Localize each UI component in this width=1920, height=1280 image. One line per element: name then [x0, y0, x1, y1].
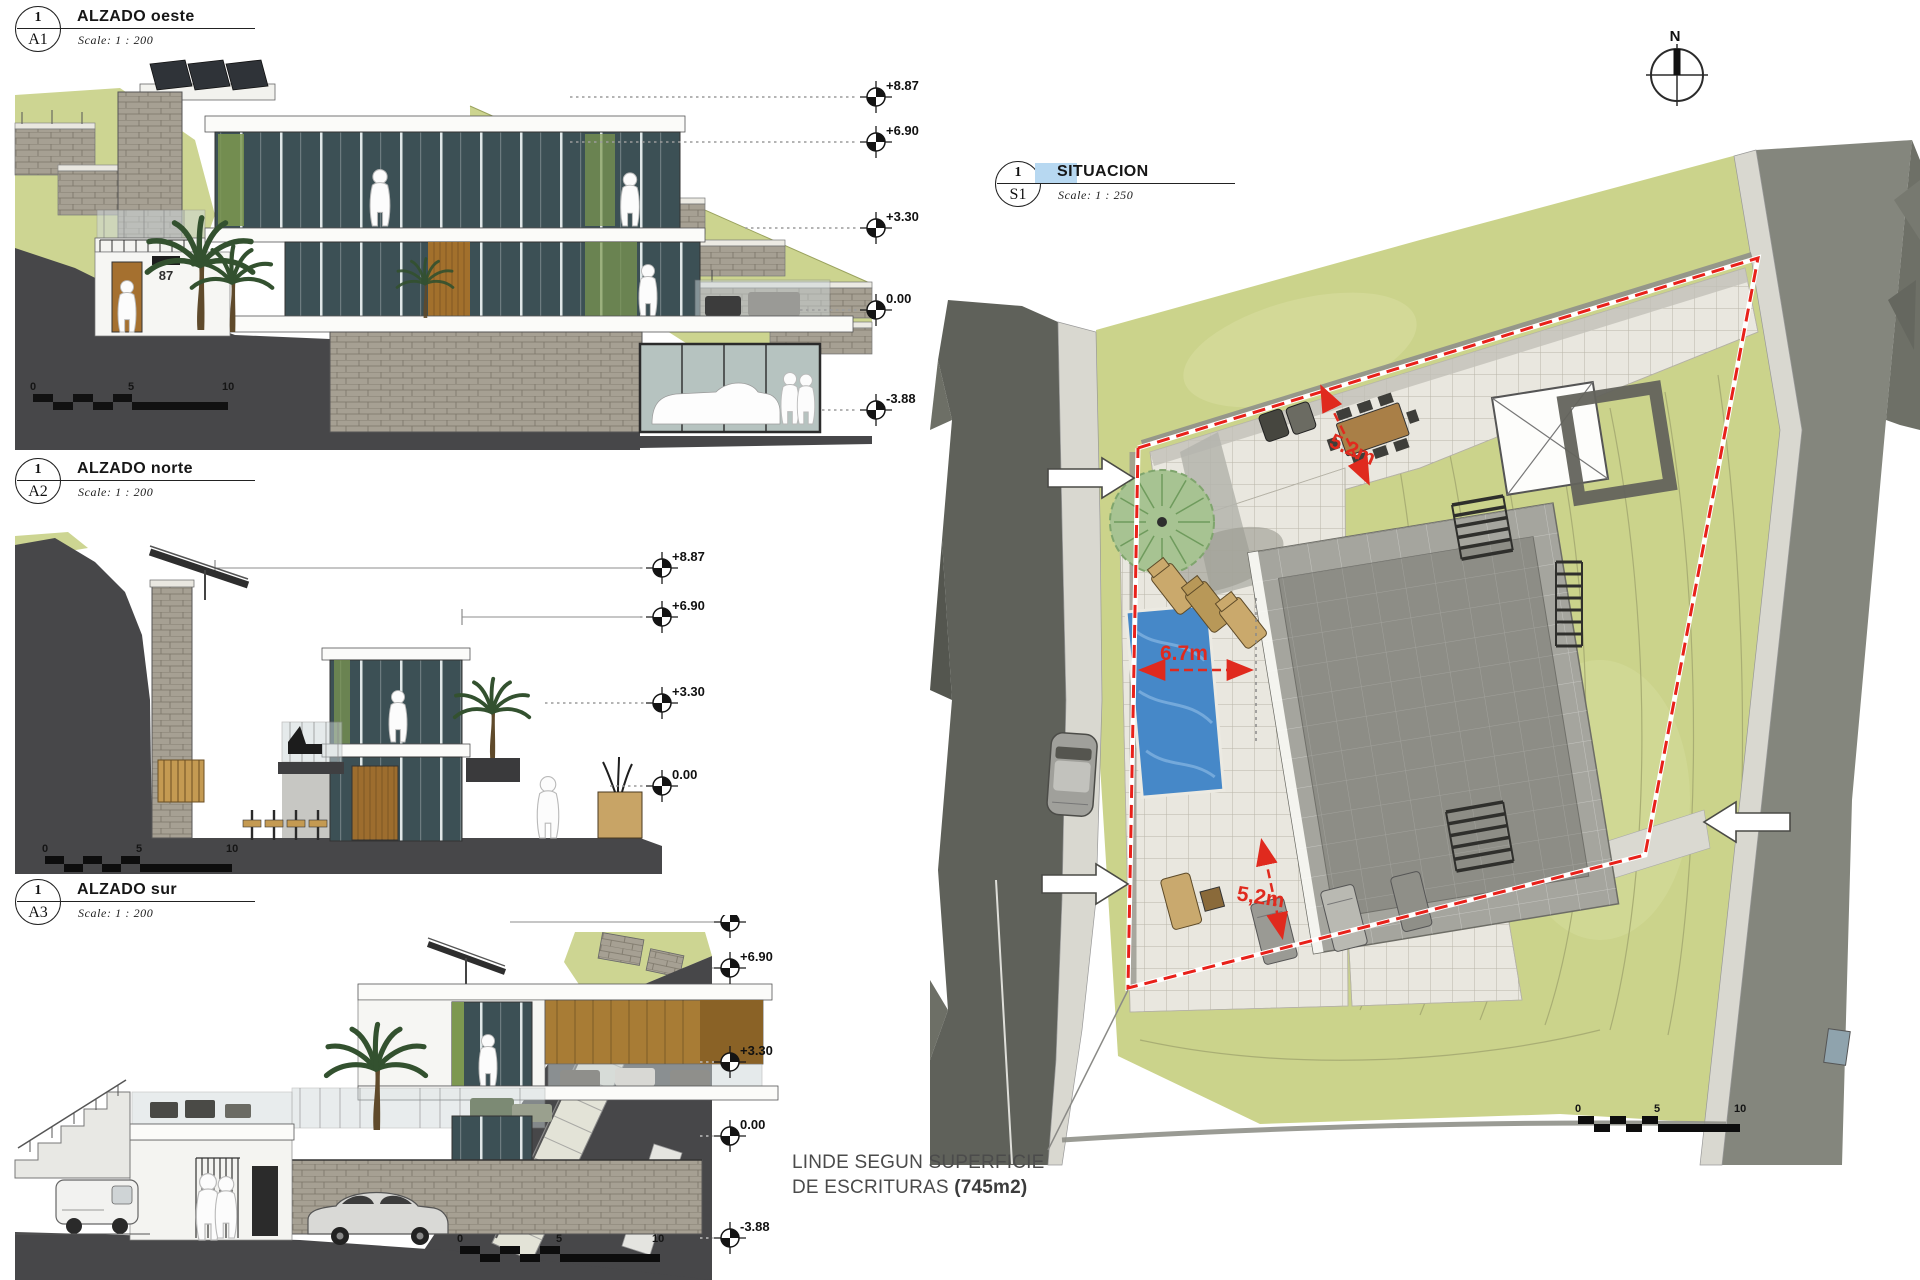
scale-label: 0: [1575, 1103, 1581, 1115]
view-ref: A2: [15, 483, 61, 501]
north-arrow-icon: N: [1646, 28, 1708, 106]
title-underline: [997, 183, 1235, 184]
north-building: [158, 648, 642, 841]
elevation-west-drawing: 87 +8.87 +6.90 +3.30 0.00 -3.88 0 5 10: [10, 50, 1000, 450]
elevation-north-drawing: +8.87 +6.90 +3.30 0.00 0 5 10: [10, 525, 730, 885]
svg-text:6.7m: 6.7m: [1160, 642, 1208, 665]
scale-label: 10: [1734, 1103, 1746, 1115]
scale-label: 0: [30, 381, 36, 393]
house-roof: [1248, 503, 1619, 954]
north-ground-mass: [15, 538, 152, 838]
house-number: 87: [159, 268, 173, 283]
level-label: +8.87: [740, 915, 773, 918]
view-number: 1: [15, 883, 61, 899]
pool: [1126, 605, 1224, 797]
view-scale: Scale: 1 : 200: [78, 33, 153, 48]
left-steps: [15, 1080, 130, 1178]
level-label: +6.90: [886, 123, 919, 138]
view-title: SITUACION: [1057, 163, 1149, 181]
view-title: ALZADO oeste: [77, 8, 195, 26]
view-scale: Scale: 1 : 200: [78, 485, 153, 500]
level-label: 0.00: [672, 767, 697, 782]
level-label: +6.90: [672, 598, 705, 613]
scale-label: 5: [556, 1233, 562, 1245]
pergola-south: [428, 938, 505, 985]
view-number: 1: [995, 165, 1041, 181]
drawing-sheet: 87 +8.87 +6.90 +3.30 0.00 -3.88 0 5 10: [0, 0, 1920, 1280]
view-title: ALZADO sur: [77, 881, 177, 899]
boundary-note: LINDE SEGUN SUPERFICIE DE ESCRITURAS (74…: [792, 1150, 1092, 1200]
level-label: +3.30: [672, 684, 705, 699]
level-label: 0.00: [740, 1117, 765, 1132]
note-line2: DE ESCRITURAS: [792, 1177, 954, 1198]
level-label: +3.30: [886, 209, 919, 224]
scale-label: 10: [222, 381, 234, 393]
van: [56, 1180, 138, 1234]
level-markers-north: +8.87 +6.90 +3.30 0.00: [545, 549, 705, 802]
title-underline: [17, 28, 255, 29]
elevation-south-drawing: +8.87 +6.90 +3.30 0.00 -3.88 0 5 10: [10, 915, 780, 1280]
north-reference-lines: [215, 560, 640, 625]
note-line1: LINDE SEGUN SUPERFICIE: [792, 1152, 1045, 1173]
view-number: 1: [15, 462, 61, 478]
scale-label: 5: [136, 843, 142, 855]
left-road: [930, 300, 1066, 1165]
scale-label: 10: [652, 1233, 664, 1245]
scale-label: 0: [457, 1233, 463, 1245]
view-ref: A1: [15, 31, 61, 49]
note-area-value: (745m2): [954, 1177, 1027, 1198]
scale-label: 5: [1654, 1103, 1660, 1115]
view-ref: A3: [15, 904, 61, 922]
level-label: +6.90: [740, 949, 773, 964]
level-label: +8.87: [672, 549, 705, 564]
scale-label: 5: [128, 381, 134, 393]
scale-label: 10: [226, 843, 238, 855]
level-label: -3.88: [886, 391, 916, 406]
scale-label: 0: [42, 843, 48, 855]
title-underline: [17, 480, 255, 481]
view-ref: S1: [995, 186, 1041, 204]
level-label: 0.00: [886, 291, 911, 306]
view-scale: Scale: 1 : 250: [1058, 188, 1133, 203]
level-label: +3.30: [740, 1043, 773, 1058]
title-underline: [17, 901, 255, 902]
svg-text:N: N: [1670, 28, 1681, 45]
parked-car: [1046, 732, 1098, 817]
view-scale: Scale: 1 : 200: [78, 906, 153, 921]
view-number: 1: [15, 10, 61, 26]
garage: [640, 344, 820, 432]
level-label: -3.88: [740, 1219, 770, 1234]
level-label: +8.87: [886, 78, 919, 93]
view-title: ALZADO norte: [77, 460, 193, 478]
